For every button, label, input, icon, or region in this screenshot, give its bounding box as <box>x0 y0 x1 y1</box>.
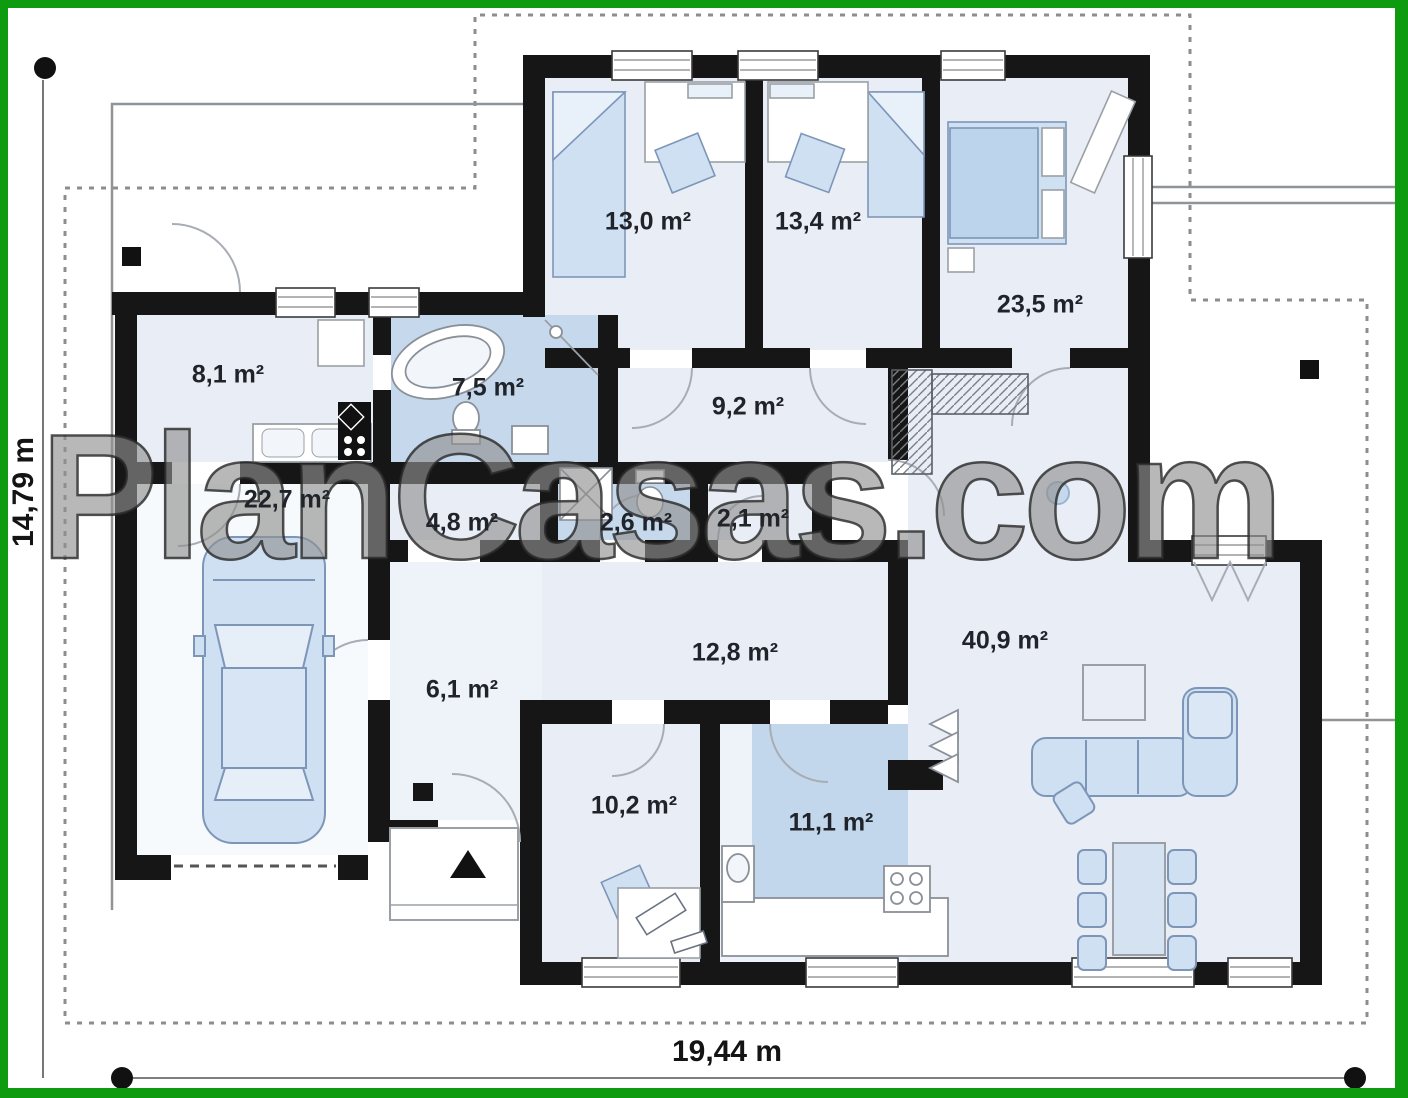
survey-dot-bottom-left <box>111 1067 133 1089</box>
marker-square-right <box>1300 360 1319 379</box>
floorplan-drawing <box>0 0 1408 1098</box>
room-label-closet: 2,1 m² <box>717 505 789 534</box>
room-label-bedroom3: 23,5 m² <box>997 291 1083 320</box>
room-label-entrance: 6,1 m² <box>426 676 498 705</box>
room-label-utility: 8,1 m² <box>192 361 264 390</box>
survey-dot-top-left <box>34 57 56 79</box>
dimension-width-label: 19,44 m <box>672 1035 782 1069</box>
room-label-storage: 4,8 m² <box>426 509 498 538</box>
entrance-porch <box>390 828 518 920</box>
green-border-left <box>0 0 8 1098</box>
room-label-office: 10,2 m² <box>591 792 677 821</box>
green-border-top <box>0 0 1408 8</box>
car <box>194 537 334 843</box>
room-label-living: 40,9 m² <box>962 627 1048 656</box>
survey-dot-bottom-right <box>1344 1067 1366 1089</box>
dimension-height-label: 14,79 m <box>7 437 41 547</box>
room-label-hallway: 9,2 m² <box>712 393 784 422</box>
room-label-garage: 22,7 m² <box>244 486 330 515</box>
green-border-right <box>1395 0 1408 1098</box>
floor-plan-page: PlanCasas.com 8,1 m² 7,5 m² 13,0 m² 13,4… <box>0 0 1408 1098</box>
marker-square-left <box>122 247 141 266</box>
green-border-bottom <box>0 1088 1408 1098</box>
room-label-corridor: 12,8 m² <box>692 639 778 668</box>
room-label-wc: 2,6 m² <box>600 509 672 538</box>
room-label-kitchen: 11,1 m² <box>789 809 874 838</box>
room-label-bedroom1: 13,0 m² <box>605 208 691 237</box>
room-label-bathroom: 7,5 m² <box>452 374 524 403</box>
room-label-bedroom2: 13,4 m² <box>775 208 861 237</box>
